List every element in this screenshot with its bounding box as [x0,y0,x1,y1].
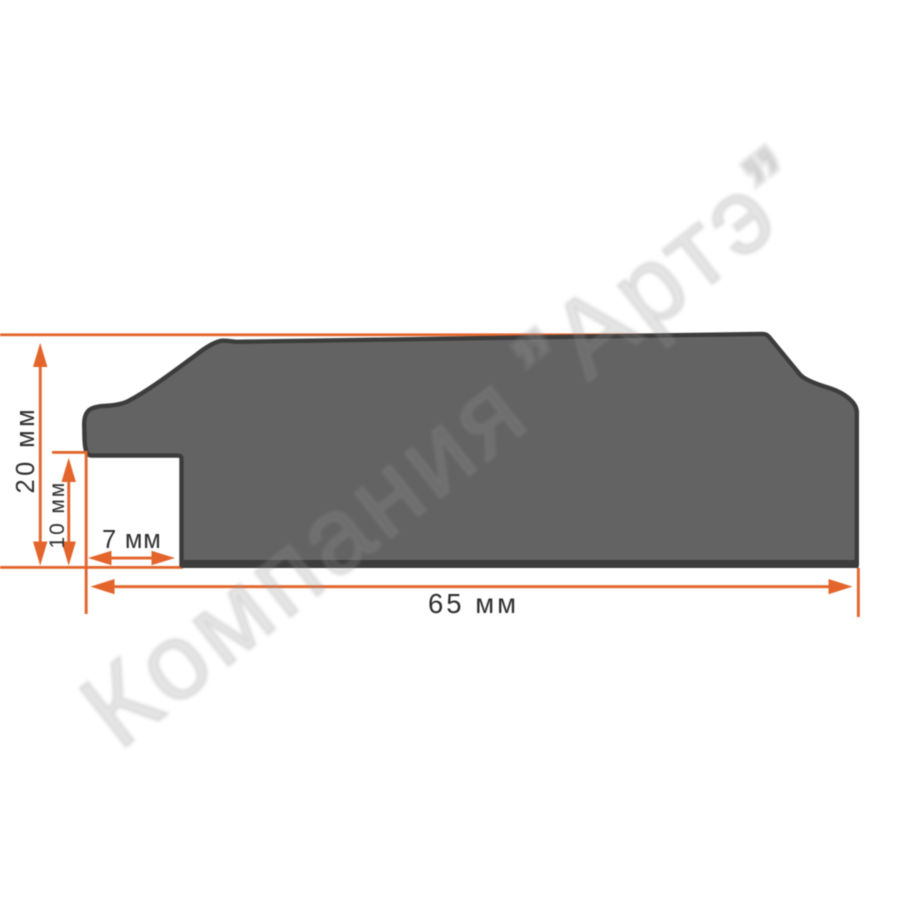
svg-text:65 мм: 65 мм [428,588,519,619]
svg-text:20 мм: 20 мм [12,406,40,494]
svg-text:10 мм: 10 мм [46,481,69,549]
svg-text:7 мм: 7 мм [102,526,162,554]
